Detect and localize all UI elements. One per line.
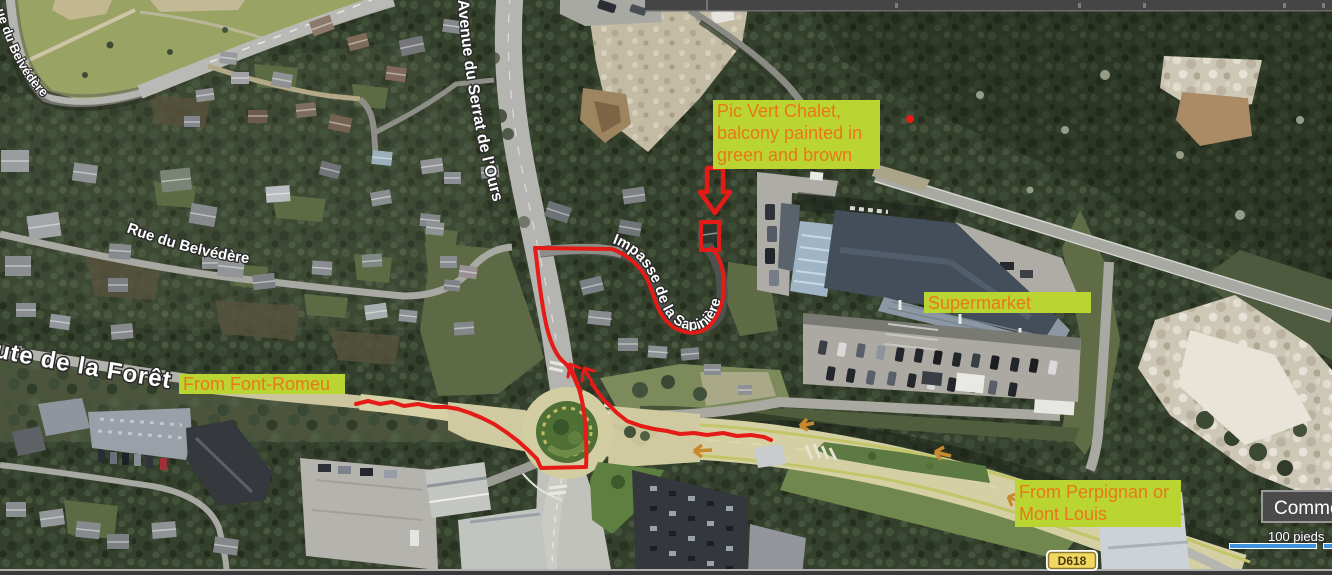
- svg-text:Pic Vert Chalet,: Pic Vert Chalet,: [717, 101, 841, 121]
- svg-text:100 pieds: 100 pieds: [1268, 529, 1325, 544]
- svg-text:Comme: Comme: [1274, 498, 1332, 519]
- svg-text:Mont Louis: Mont Louis: [1019, 504, 1107, 524]
- svg-text:Supermarket: Supermarket: [928, 293, 1031, 313]
- svg-text:D618: D618: [1058, 554, 1087, 568]
- svg-text:From Font-Romeu: From Font-Romeu: [183, 374, 330, 394]
- svg-text:green and brown: green and brown: [717, 145, 852, 165]
- svg-text:balcony painted in: balcony painted in: [717, 123, 862, 143]
- svg-text:From Perpignan or: From Perpignan or: [1019, 482, 1169, 502]
